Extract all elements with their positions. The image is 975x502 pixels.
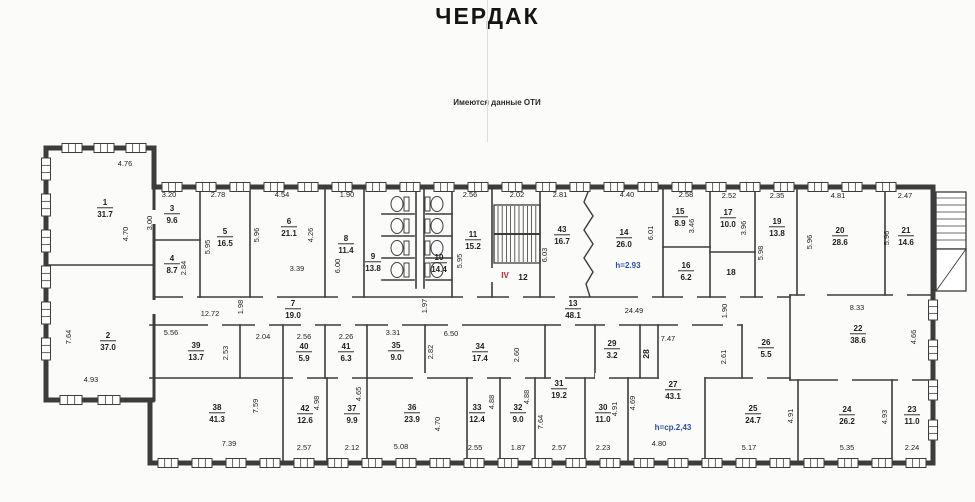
door-opening (726, 292, 740, 301)
window-icon (808, 183, 828, 192)
room-number-27: 27 (669, 380, 678, 389)
door-opening (338, 373, 352, 382)
toilet-icon (431, 219, 443, 234)
dimension-label: 7.64 (64, 330, 73, 344)
toilet-icon (431, 197, 443, 212)
dimension-label: 2.84 (179, 261, 188, 275)
toilet-icon (425, 197, 430, 211)
dimension-label: 1.98 (236, 300, 245, 314)
window-icon (298, 183, 318, 192)
window-icon (638, 183, 658, 192)
door-opening (838, 375, 852, 384)
door-opening (595, 373, 609, 382)
dimension-label: 5.98 (756, 246, 765, 260)
door-opening (511, 373, 525, 382)
room-area-42: 12.6 (297, 416, 313, 425)
room-number-31: 31 (555, 379, 564, 388)
room-area-15: 8.9 (674, 219, 686, 228)
room-area-3: 9.6 (166, 216, 178, 225)
room-number-29: 29 (608, 339, 617, 348)
dimension-label: 4.80 (652, 439, 666, 448)
dimension-label: 5.96 (805, 235, 814, 249)
dimension-label: 2.02 (510, 190, 524, 199)
dimension-label: 6.01 (646, 226, 655, 240)
dimension-label: 2.24 (905, 443, 919, 452)
dimension-label: 6.03 (540, 248, 549, 262)
window-icon (929, 420, 938, 440)
window-icon (600, 459, 620, 468)
dimension-label: 12.72 (201, 309, 220, 318)
room-number-10: 10 (435, 253, 444, 262)
dimension-label: 3.96 (739, 221, 748, 235)
height-annotation: h=ср.2,43 (655, 423, 692, 432)
door-opening (555, 292, 569, 301)
dimension-label: 2.47 (898, 191, 912, 200)
room-area-39: 13.7 (188, 353, 204, 362)
room-number-23: 23 (908, 405, 917, 414)
room-area-35: 9.0 (390, 353, 402, 362)
room-number-6: 6 (287, 217, 292, 226)
window-icon (42, 158, 51, 180)
door-opening (753, 375, 767, 384)
dimension-label: 4.88 (522, 390, 531, 404)
window-icon (260, 459, 280, 468)
window-icon (158, 459, 178, 468)
room-area-13: 48.1 (565, 311, 581, 320)
room-area-33: 12.4 (469, 415, 485, 424)
dimension-label: 4.40 (620, 190, 634, 199)
room-number-16: 16 (682, 261, 691, 270)
door-opening (898, 375, 912, 384)
window-icon (634, 459, 654, 468)
window-icon (94, 144, 114, 153)
room-area-6: 21.1 (281, 229, 297, 238)
dimension-label: 1.90 (720, 304, 729, 318)
toilet-icon (391, 219, 403, 234)
dimension-label: 2.26 (339, 332, 353, 341)
room-area-43: 16.7 (554, 237, 570, 246)
window-icon (42, 194, 51, 216)
dimension-label: 8.33 (850, 303, 864, 312)
room-number-26: 26 (762, 338, 771, 347)
room-area-2: 37.0 (100, 343, 116, 352)
door-opening (255, 320, 269, 329)
dimension-label: 2.35 (770, 191, 784, 200)
dimension-label: 4.93 (880, 410, 889, 424)
window-icon (42, 266, 51, 288)
dimension-label: 4.66 (909, 330, 918, 344)
window-icon (42, 230, 51, 252)
window-icon (872, 459, 892, 468)
dimension-label: 2.12 (345, 443, 359, 452)
window-icon (396, 459, 416, 468)
room-area-23: 11.0 (904, 417, 920, 426)
dimension-label: 3.00 (145, 216, 154, 230)
window-icon (366, 183, 386, 192)
room-number-39: 39 (192, 341, 201, 350)
room-number-43: 43 (558, 225, 567, 234)
dimension-label: 7.47 (661, 334, 675, 343)
room-number-41: 41 (342, 342, 351, 351)
toilet-icon (425, 263, 430, 277)
dimension-label: 3.31 (386, 328, 400, 337)
window-icon (126, 144, 146, 153)
dimension-label: 5.95 (455, 254, 464, 268)
room-number-25: 25 (749, 404, 758, 413)
room-area-17: 10.0 (720, 220, 736, 229)
room-area-29: 3.2 (606, 351, 618, 360)
window-icon (804, 459, 824, 468)
room-area-32: 9.0 (512, 415, 524, 424)
door-opening (678, 320, 692, 329)
door-opening (638, 292, 652, 301)
room-area-7: 19.0 (285, 311, 301, 320)
dimension-label: 4.76 (118, 159, 132, 168)
room-number-20: 20 (836, 226, 845, 235)
dimension-label: 2.52 (722, 191, 736, 200)
door-opening (263, 292, 277, 301)
door-opening (561, 320, 575, 329)
door-opening (301, 320, 315, 329)
window-icon (60, 396, 82, 405)
dimension-label: 2.81 (553, 190, 567, 199)
door-opening (463, 292, 477, 301)
room-number-4: 4 (170, 254, 175, 263)
dimension-label: 4.65 (354, 387, 363, 401)
dimension-label: 4.69 (628, 396, 637, 410)
window-icon (702, 459, 722, 468)
window-icon (192, 459, 212, 468)
door-opening (683, 292, 697, 301)
room-number-5: 5 (223, 227, 228, 236)
room-area-37: 9.9 (346, 416, 358, 425)
window-icon (668, 459, 688, 468)
toilet-icon (404, 241, 409, 255)
window-icon (434, 183, 454, 192)
room-area-16: 6.2 (680, 273, 692, 282)
room-number-35: 35 (392, 341, 401, 350)
window-icon (740, 183, 760, 192)
door-opening (893, 292, 907, 301)
room-number-38: 38 (213, 403, 222, 412)
section-mark-label: IV (501, 271, 509, 280)
dimension-label: 5.96 (252, 228, 261, 242)
room-number-1: 1 (103, 198, 108, 207)
height-annotation: h=2.93 (615, 261, 641, 270)
room-area-21: 14.6 (898, 238, 914, 247)
door-opening (150, 300, 158, 314)
dimension-label: 5.96 (882, 231, 891, 245)
room-label-28: 28 (641, 349, 651, 359)
dimension-label: 2.56 (463, 190, 477, 199)
dimension-label: 4.91 (786, 409, 795, 423)
dimension-label: 3.20 (162, 190, 176, 199)
room-area-5: 16.5 (217, 239, 233, 248)
door-opening (208, 320, 222, 329)
dimension-label: 2.61 (719, 350, 728, 364)
room-area-34: 17.4 (472, 354, 488, 363)
window-icon (566, 459, 586, 468)
door-opening (509, 292, 523, 301)
window-icon (430, 459, 450, 468)
room-number-36: 36 (408, 403, 417, 412)
room-number-42: 42 (301, 404, 310, 413)
window-icon (929, 340, 938, 360)
window-icon (532, 459, 552, 468)
dimension-label: 24.49 (625, 306, 644, 315)
room-area-11: 15.2 (465, 242, 481, 251)
window-icon (226, 459, 246, 468)
room-area-40: 5.9 (298, 354, 310, 363)
toilet-icon (391, 197, 403, 212)
door-opening (338, 292, 352, 301)
dimension-label: 7.59 (251, 399, 260, 413)
window-icon (42, 338, 51, 360)
room-area-9: 13.8 (365, 264, 381, 273)
window-icon (400, 183, 420, 192)
toilet-icon (425, 241, 430, 255)
room-area-41: 6.3 (340, 354, 352, 363)
room-number-14: 14 (620, 228, 629, 237)
toilet-icon (404, 263, 409, 277)
dimension-label: 2.57 (552, 443, 566, 452)
room-number-34: 34 (476, 342, 485, 351)
dimension-label: 2.58 (679, 190, 693, 199)
door-opening (763, 292, 777, 301)
dimension-label: 2.53 (221, 346, 230, 360)
dimension-label: 4.70 (433, 417, 442, 431)
dimension-label: 4.93 (84, 375, 98, 384)
dimension-label: 2.60 (512, 348, 521, 362)
toilet-icon (391, 263, 403, 278)
dimension-label: 2.23 (596, 443, 610, 452)
toilet-icon (391, 241, 403, 256)
room-area-25: 24.7 (745, 416, 761, 425)
dimension-label: 7.39 (222, 439, 236, 448)
room-number-33: 33 (473, 403, 482, 412)
room-area-31: 19.2 (551, 391, 567, 400)
window-icon (876, 183, 896, 192)
room-area-1: 31.7 (97, 210, 113, 219)
door-opening (605, 320, 619, 329)
door-opening (183, 292, 197, 301)
dimension-label: 5.08 (394, 442, 408, 451)
room-number-24: 24 (843, 405, 852, 414)
door-opening (293, 373, 307, 382)
window-icon (838, 459, 858, 468)
dimension-label: 2.57 (297, 443, 311, 452)
window-icon (906, 459, 926, 468)
dimension-label: 4.54 (275, 190, 289, 199)
dimension-label: 4.81 (831, 191, 845, 200)
room-number-40: 40 (300, 342, 309, 351)
window-icon (498, 459, 518, 468)
room-area-8: 11.4 (338, 246, 354, 255)
attic-floor-plan: 131.7237.039.648.7516.5621.1719.0811.491… (0, 0, 975, 502)
window-icon (98, 396, 120, 405)
door-opening (448, 320, 462, 329)
dimension-label: 6.00 (333, 259, 342, 273)
room-number-37: 37 (348, 404, 357, 413)
window-icon (42, 302, 51, 324)
window-icon (770, 459, 790, 468)
room-number-11: 11 (469, 230, 478, 239)
dimension-label: 1.87 (511, 443, 525, 452)
window-icon (294, 459, 314, 468)
door-opening (341, 320, 355, 329)
dimension-label: 1.90 (340, 190, 354, 199)
dimension-label: 1.97 (420, 299, 429, 313)
room-number-15: 15 (676, 207, 685, 216)
room-area-36: 23.9 (404, 415, 420, 424)
dimension-label: 4.88 (487, 395, 496, 409)
dimension-label: 2.78 (211, 190, 225, 199)
room-number-21: 21 (902, 226, 911, 235)
window-icon (929, 380, 938, 400)
dimension-label: 6.50 (444, 329, 458, 338)
room-number-30: 30 (599, 403, 608, 412)
room-area-38: 41.3 (209, 415, 225, 424)
scanned-floor-plan-page: ЧЕРДАК Имеются данные ОТИ 131.7237.039.6… (0, 0, 975, 502)
room-number-2: 2 (106, 331, 111, 340)
door-opening (723, 320, 737, 329)
door-opening (413, 373, 427, 382)
window-icon (929, 300, 938, 320)
door-opening (473, 373, 487, 382)
dimension-label: 2.55 (468, 443, 482, 452)
room-area-22: 38.6 (850, 336, 866, 345)
window-icon (736, 459, 756, 468)
window-icon (464, 459, 484, 468)
dimension-label: 2.56 (297, 332, 311, 341)
room-label-18: 18 (726, 267, 736, 277)
room-number-22: 22 (854, 324, 863, 333)
window-icon (328, 459, 348, 468)
room-area-30: 11.0 (595, 415, 611, 424)
room-area-20: 28.6 (832, 238, 848, 247)
dimension-label: 5.56 (164, 328, 178, 337)
toilet-icon (404, 219, 409, 233)
room-number-9: 9 (371, 252, 376, 261)
exterior-stair-icon (936, 192, 966, 249)
room-area-14: 26.0 (616, 240, 632, 249)
room-number-17: 17 (724, 208, 733, 217)
door-opening (805, 290, 819, 299)
toilet-icon (425, 219, 430, 233)
room-area-24: 26.2 (839, 417, 855, 426)
room-number-3: 3 (170, 204, 175, 213)
window-icon (230, 183, 250, 192)
room-number-19: 19 (773, 217, 782, 226)
room-area-10: 14.4 (431, 265, 447, 274)
dimension-label: 3.46 (687, 219, 696, 233)
room-number-7: 7 (291, 299, 296, 308)
dimension-label: 3.39 (290, 264, 304, 273)
dimension-label: 7.64 (536, 415, 545, 429)
dimension-label: 4.98 (312, 396, 321, 410)
room-area-19: 13.8 (769, 229, 785, 238)
room-area-4: 8.7 (166, 266, 178, 275)
dimension-label: 5.95 (203, 240, 212, 254)
room-area-27: 43.1 (665, 392, 681, 401)
dimension-label: 4.70 (121, 227, 130, 241)
dimension-label: 2.82 (426, 345, 435, 359)
zigzag-partition-wall (584, 187, 593, 297)
dimension-label: 5.35 (840, 443, 854, 452)
room-number-13: 13 (569, 299, 578, 308)
dimension-label: 2.04 (256, 332, 270, 341)
room-number-8: 8 (344, 234, 349, 243)
window-icon (362, 459, 382, 468)
dimension-label: 4.26 (306, 228, 315, 242)
window-icon (62, 144, 82, 153)
door-opening (488, 268, 496, 282)
room-label-12: 12 (518, 272, 528, 282)
room-area-26: 5.5 (760, 350, 772, 359)
dimension-label: 4.91 (610, 402, 619, 416)
toilet-icon (404, 197, 409, 211)
window-icon (570, 183, 590, 192)
dimension-label: 5.17 (742, 443, 756, 452)
